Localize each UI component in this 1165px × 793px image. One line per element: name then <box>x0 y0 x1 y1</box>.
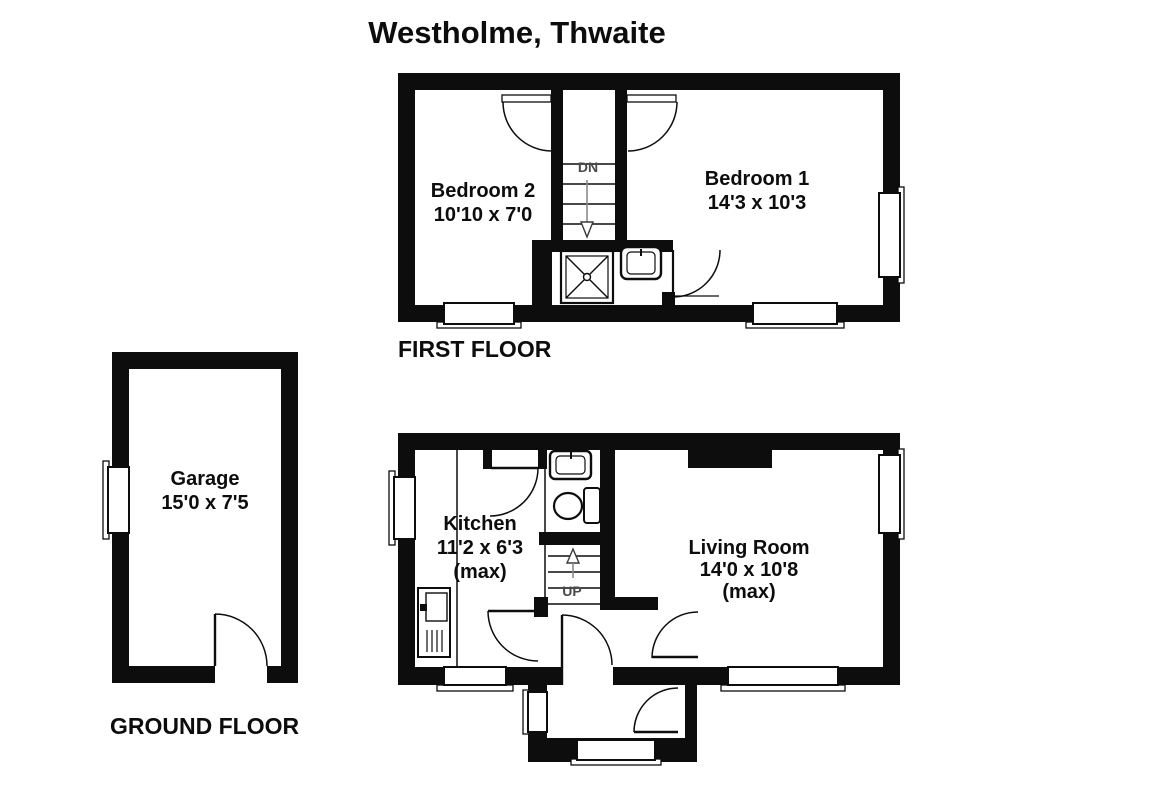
garage-plan: Garage 15'0 x 7'5 <box>103 352 298 683</box>
kitchen-door-stub <box>483 450 492 469</box>
shower-room-left-wall <box>532 240 552 305</box>
property-title: Westholme, Thwaite <box>368 15 665 50</box>
porch-front-window <box>571 740 661 765</box>
bedroom1-dims: 14'3 x 10'3 <box>708 192 807 214</box>
bedroom2-label: Bedroom 2 <box>431 180 535 202</box>
door-leaf <box>502 95 551 102</box>
boiler-icon <box>418 588 450 657</box>
porch-interior <box>547 685 685 738</box>
shower-icon <box>561 251 613 303</box>
porch-side-window <box>523 690 547 734</box>
bedroom2-dims: 10'10 x 7'0 <box>434 204 533 226</box>
stairs-up-label: UP <box>562 583 581 599</box>
ground-floor-plan: UP <box>389 433 904 765</box>
hall-door-opening <box>562 667 613 685</box>
garage-window <box>103 461 129 539</box>
bedroom2-window <box>437 303 521 328</box>
garage-interior <box>129 369 281 666</box>
garage-label: Garage <box>171 468 240 490</box>
kitchen-side-window <box>389 471 415 545</box>
floorplan-drawing: Westholme, Thwaite DN <box>0 0 1165 793</box>
bedroom1-bottom-window <box>746 303 844 328</box>
stairwell-wall-left <box>551 88 563 242</box>
kitchen-label: Kitchen <box>443 513 516 535</box>
stairs-dn-label: DN <box>578 159 598 175</box>
sink-icon <box>550 446 591 479</box>
kitchen-max: (max) <box>453 561 506 583</box>
ground-floor-caption: GROUND FLOOR <box>110 713 299 739</box>
kitchen-bottom-window <box>437 667 513 691</box>
chimney-breast <box>688 450 772 468</box>
garage-dims: 15'0 x 7'5 <box>161 492 248 514</box>
living-room-max: (max) <box>722 581 775 603</box>
living-room-side-window <box>879 449 904 539</box>
porch <box>523 685 697 765</box>
first-floor-plan: DN <box>398 73 904 328</box>
living-room-bottom-window <box>721 667 845 691</box>
living-room-label: Living Room <box>688 537 809 559</box>
stairs-bottom-stub <box>534 597 548 617</box>
bedroom1-side-window <box>879 187 904 283</box>
hall-living-wall <box>600 597 658 610</box>
sink-icon <box>621 241 661 279</box>
living-room-dims: 14'0 x 10'8 <box>700 559 799 581</box>
bedroom1-label: Bedroom 1 <box>705 168 809 190</box>
first-floor-caption: FIRST FLOOR <box>398 336 552 362</box>
floorplan-page: Westholme, Thwaite DN <box>0 0 1165 793</box>
stairwell-wall-right <box>615 88 627 242</box>
wc-wall-stub <box>538 450 547 469</box>
hall-separator-wall <box>600 450 615 610</box>
door-leaf <box>627 95 676 102</box>
kitchen-dims: 11'2 x 6'3 <box>437 537 523 559</box>
